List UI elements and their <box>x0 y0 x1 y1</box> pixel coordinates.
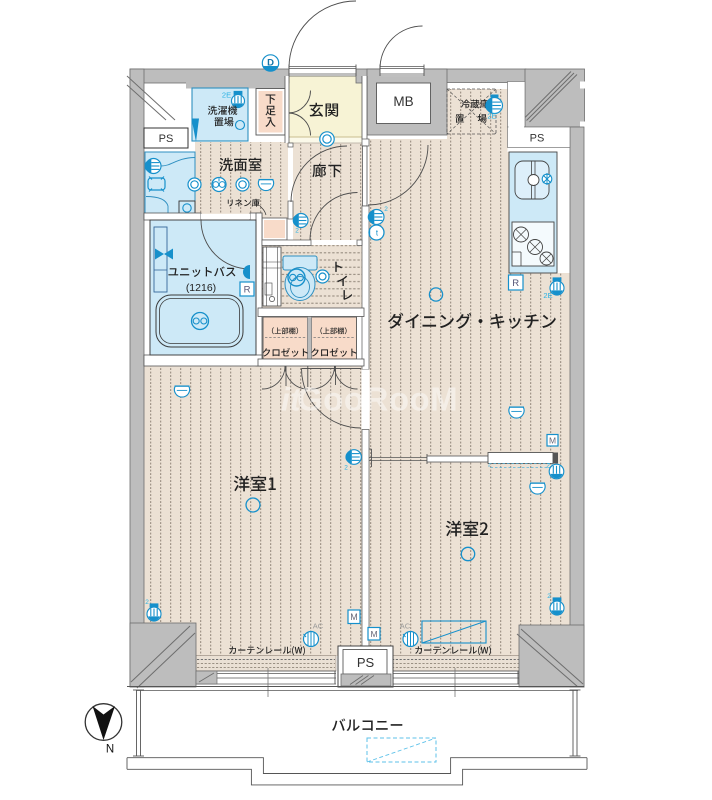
svg-text:PS: PS <box>357 655 375 670</box>
svg-text:N: N <box>106 744 114 756</box>
svg-text:AC: AC <box>400 622 411 631</box>
svg-text:2: 2 <box>344 465 348 472</box>
svg-text:PS: PS <box>530 133 545 145</box>
svg-text:2E: 2E <box>543 291 552 300</box>
svg-text:PS: PS <box>159 133 174 145</box>
svg-text:AC: AC <box>313 622 324 631</box>
svg-text:2: 2 <box>384 206 388 213</box>
svg-text:M: M <box>350 612 358 622</box>
svg-text:2: 2 <box>295 228 299 235</box>
svg-text:M: M <box>370 629 377 639</box>
svg-text:2: 2 <box>547 593 551 600</box>
svg-text:GooRooM: GooRooM <box>297 381 458 418</box>
svg-text:MB: MB <box>393 94 413 109</box>
svg-text:2E: 2E <box>222 91 231 100</box>
svg-text:2E: 2E <box>487 112 496 121</box>
svg-text:2: 2 <box>546 463 550 470</box>
svg-text:M: M <box>549 436 556 446</box>
svg-text:R: R <box>244 285 251 296</box>
svg-text:D: D <box>267 58 274 69</box>
svg-text:R: R <box>512 278 519 289</box>
svg-text:(1216): (1216) <box>186 282 216 294</box>
svg-text:2: 2 <box>145 599 149 606</box>
